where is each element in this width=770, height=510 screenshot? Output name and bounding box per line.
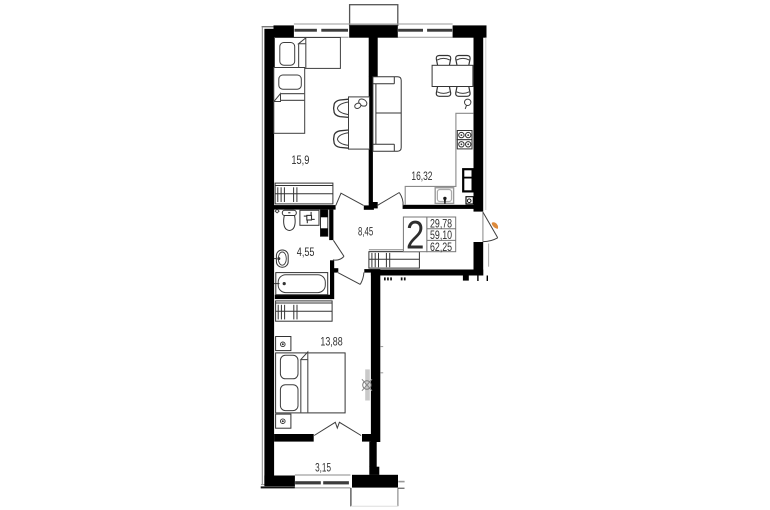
svg-text:15,9: 15,9 — [291, 154, 309, 167]
svg-text:4,55: 4,55 — [297, 246, 315, 259]
svg-text:13,88: 13,88 — [320, 336, 342, 349]
svg-text:8,45: 8,45 — [358, 226, 373, 239]
svg-text:62,25: 62,25 — [430, 241, 452, 254]
svg-text:3,15: 3,15 — [315, 461, 331, 474]
svg-text:16,32: 16,32 — [411, 170, 432, 183]
svg-text:2: 2 — [406, 213, 424, 257]
